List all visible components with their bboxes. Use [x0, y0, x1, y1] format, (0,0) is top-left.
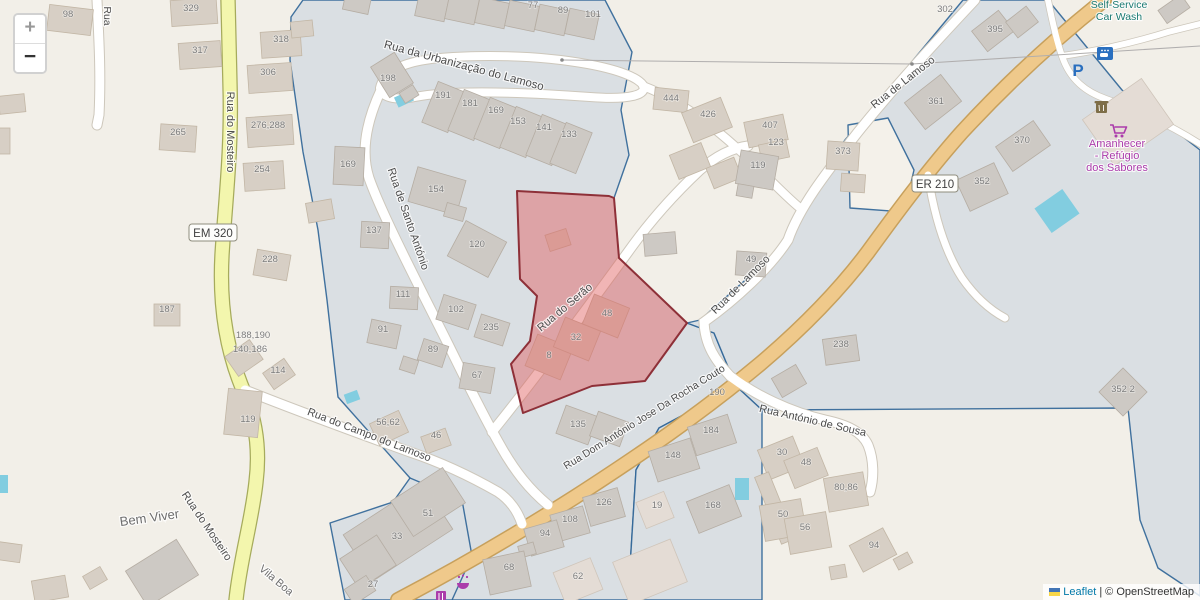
house-number: 188,190: [236, 330, 270, 341]
building: [224, 388, 263, 437]
house-number: 51: [423, 508, 434, 519]
house-number: 302: [937, 4, 953, 15]
house-number: 265: [170, 127, 186, 138]
house-number: 50: [778, 509, 789, 520]
building: [643, 232, 677, 257]
house-number: 407: [762, 120, 778, 131]
poi-label: Amanhecer: [1089, 138, 1146, 150]
house-number: 352: [974, 176, 990, 187]
house-number: 123: [768, 137, 784, 148]
house-number: 191: [435, 90, 451, 101]
house-number: 169: [488, 105, 504, 116]
house-number: 111: [396, 289, 410, 300]
house-number: 235: [483, 322, 499, 333]
map-canvas[interactable]: Rua da Urbanização do LamosoRua do Moste…: [0, 0, 1200, 600]
house-number: 190: [709, 387, 725, 398]
attribution-separator: |: [1099, 586, 1102, 598]
attribution-bar: Leaflet | © OpenStreetMap: [1043, 584, 1200, 600]
house-number: 56: [800, 522, 811, 533]
house-number: 140,186: [233, 344, 267, 355]
house-number: 114: [270, 365, 285, 376]
house-number: 27: [368, 579, 379, 590]
house-number: 80,86: [834, 482, 858, 493]
house-number: 120: [469, 239, 485, 250]
house-number: 395: [987, 24, 1003, 35]
swimming-pool: [0, 475, 8, 493]
house-number: 102: [448, 304, 464, 315]
zoom-out-button[interactable]: −: [15, 44, 45, 72]
house-number: 32: [571, 332, 582, 343]
house-number: 169: [340, 159, 356, 170]
house-number: 56,62: [376, 417, 400, 428]
house-number: 89: [558, 5, 569, 16]
house-number: 68: [504, 562, 515, 573]
house-number: 361: [928, 96, 944, 107]
house-number: 89: [428, 344, 439, 355]
house-number: 119: [750, 160, 765, 171]
street-name-label: Rua do Mosteiro: [224, 92, 236, 173]
house-number: 98: [63, 9, 74, 20]
house-number: 276,288: [251, 120, 285, 131]
ukraine-flag-icon: [1049, 588, 1060, 596]
poi-label: Car Wash: [1096, 11, 1142, 23]
house-number: 187: [159, 304, 175, 315]
house-number: 94: [869, 540, 880, 551]
building: [0, 128, 10, 154]
building: [0, 541, 22, 562]
poi-label: - Refúgio: [1095, 150, 1140, 162]
house-number: 137: [366, 225, 382, 236]
power-pole: [560, 58, 564, 62]
house-number: 329: [183, 3, 199, 14]
house-number: 306: [260, 67, 276, 78]
house-number: 426: [700, 109, 716, 120]
house-number: 352 2: [1111, 384, 1135, 395]
house-number: 91: [378, 324, 389, 335]
house-number: 198: [380, 73, 396, 84]
road-ref-badge: EM 320: [189, 224, 237, 241]
poi-label: dos Sabores: [1086, 162, 1148, 174]
memorial-icon: [436, 591, 446, 600]
house-number: 370: [1014, 135, 1030, 146]
house-number: 8: [546, 350, 551, 361]
svg-text:ER 210: ER 210: [916, 179, 954, 191]
house-number: 148: [665, 450, 681, 461]
road-ref-badge: ER 210: [912, 175, 958, 192]
house-number: 318: [273, 34, 289, 45]
house-number: 48: [602, 308, 613, 319]
waste-basket-icon: [1095, 101, 1109, 113]
house-number: 94: [540, 528, 551, 539]
house-number: 373: [835, 146, 851, 157]
building: [736, 184, 754, 199]
house-number: 254: [254, 164, 270, 175]
map-base-layer: [0, 0, 1200, 600]
house-number: 119: [240, 414, 255, 425]
house-number: 153: [510, 116, 526, 127]
house-number: 30: [777, 447, 788, 458]
openstreetmap-link[interactable]: © OpenStreetMap: [1105, 586, 1194, 598]
house-number: 19: [652, 500, 663, 511]
zoom-control: + −: [13, 13, 47, 74]
house-number: 62: [573, 571, 584, 582]
poi-label: Self-Service: [1091, 0, 1148, 11]
street-name-label: Rua: [101, 6, 113, 25]
parking-icon: P: [1072, 61, 1083, 80]
house-number: 48: [801, 457, 812, 468]
house-number: 444: [663, 93, 679, 104]
house-number: 238: [833, 339, 849, 350]
map-app: Rua da Urbanização do LamosoRua do Moste…: [0, 0, 1200, 600]
house-number: 108: [562, 514, 578, 525]
zoom-in-button[interactable]: +: [15, 15, 45, 44]
house-number: 181: [462, 98, 478, 109]
building: [784, 512, 832, 555]
swimming-pool: [735, 478, 749, 500]
house-number: 168: [705, 500, 721, 511]
house-number: 133: [561, 129, 577, 140]
house-number: 141: [536, 122, 552, 133]
house-number: 135: [570, 419, 586, 430]
house-number: 77: [528, 0, 539, 11]
house-number: 228: [262, 254, 278, 265]
house-number: 126: [596, 497, 612, 508]
house-number: 67: [472, 370, 483, 381]
building: [0, 94, 26, 115]
road: [97, 0, 100, 125]
parking-glyph: P: [1072, 61, 1083, 80]
svg-text:EM 320: EM 320: [193, 228, 233, 240]
house-number: 33: [392, 531, 403, 542]
building: [840, 173, 865, 193]
building: [290, 20, 314, 38]
leaflet-link[interactable]: Leaflet: [1063, 586, 1096, 598]
power-pole: [910, 62, 914, 66]
house-number: 184: [703, 425, 719, 436]
house-number: 154: [428, 184, 444, 195]
house-number: 101: [585, 9, 601, 20]
house-number: 46: [431, 430, 442, 441]
building: [305, 199, 334, 223]
house-number: 49: [746, 254, 757, 265]
car-wash-icon: [1097, 47, 1113, 60]
building: [829, 564, 847, 580]
house-number: 317: [192, 45, 208, 56]
